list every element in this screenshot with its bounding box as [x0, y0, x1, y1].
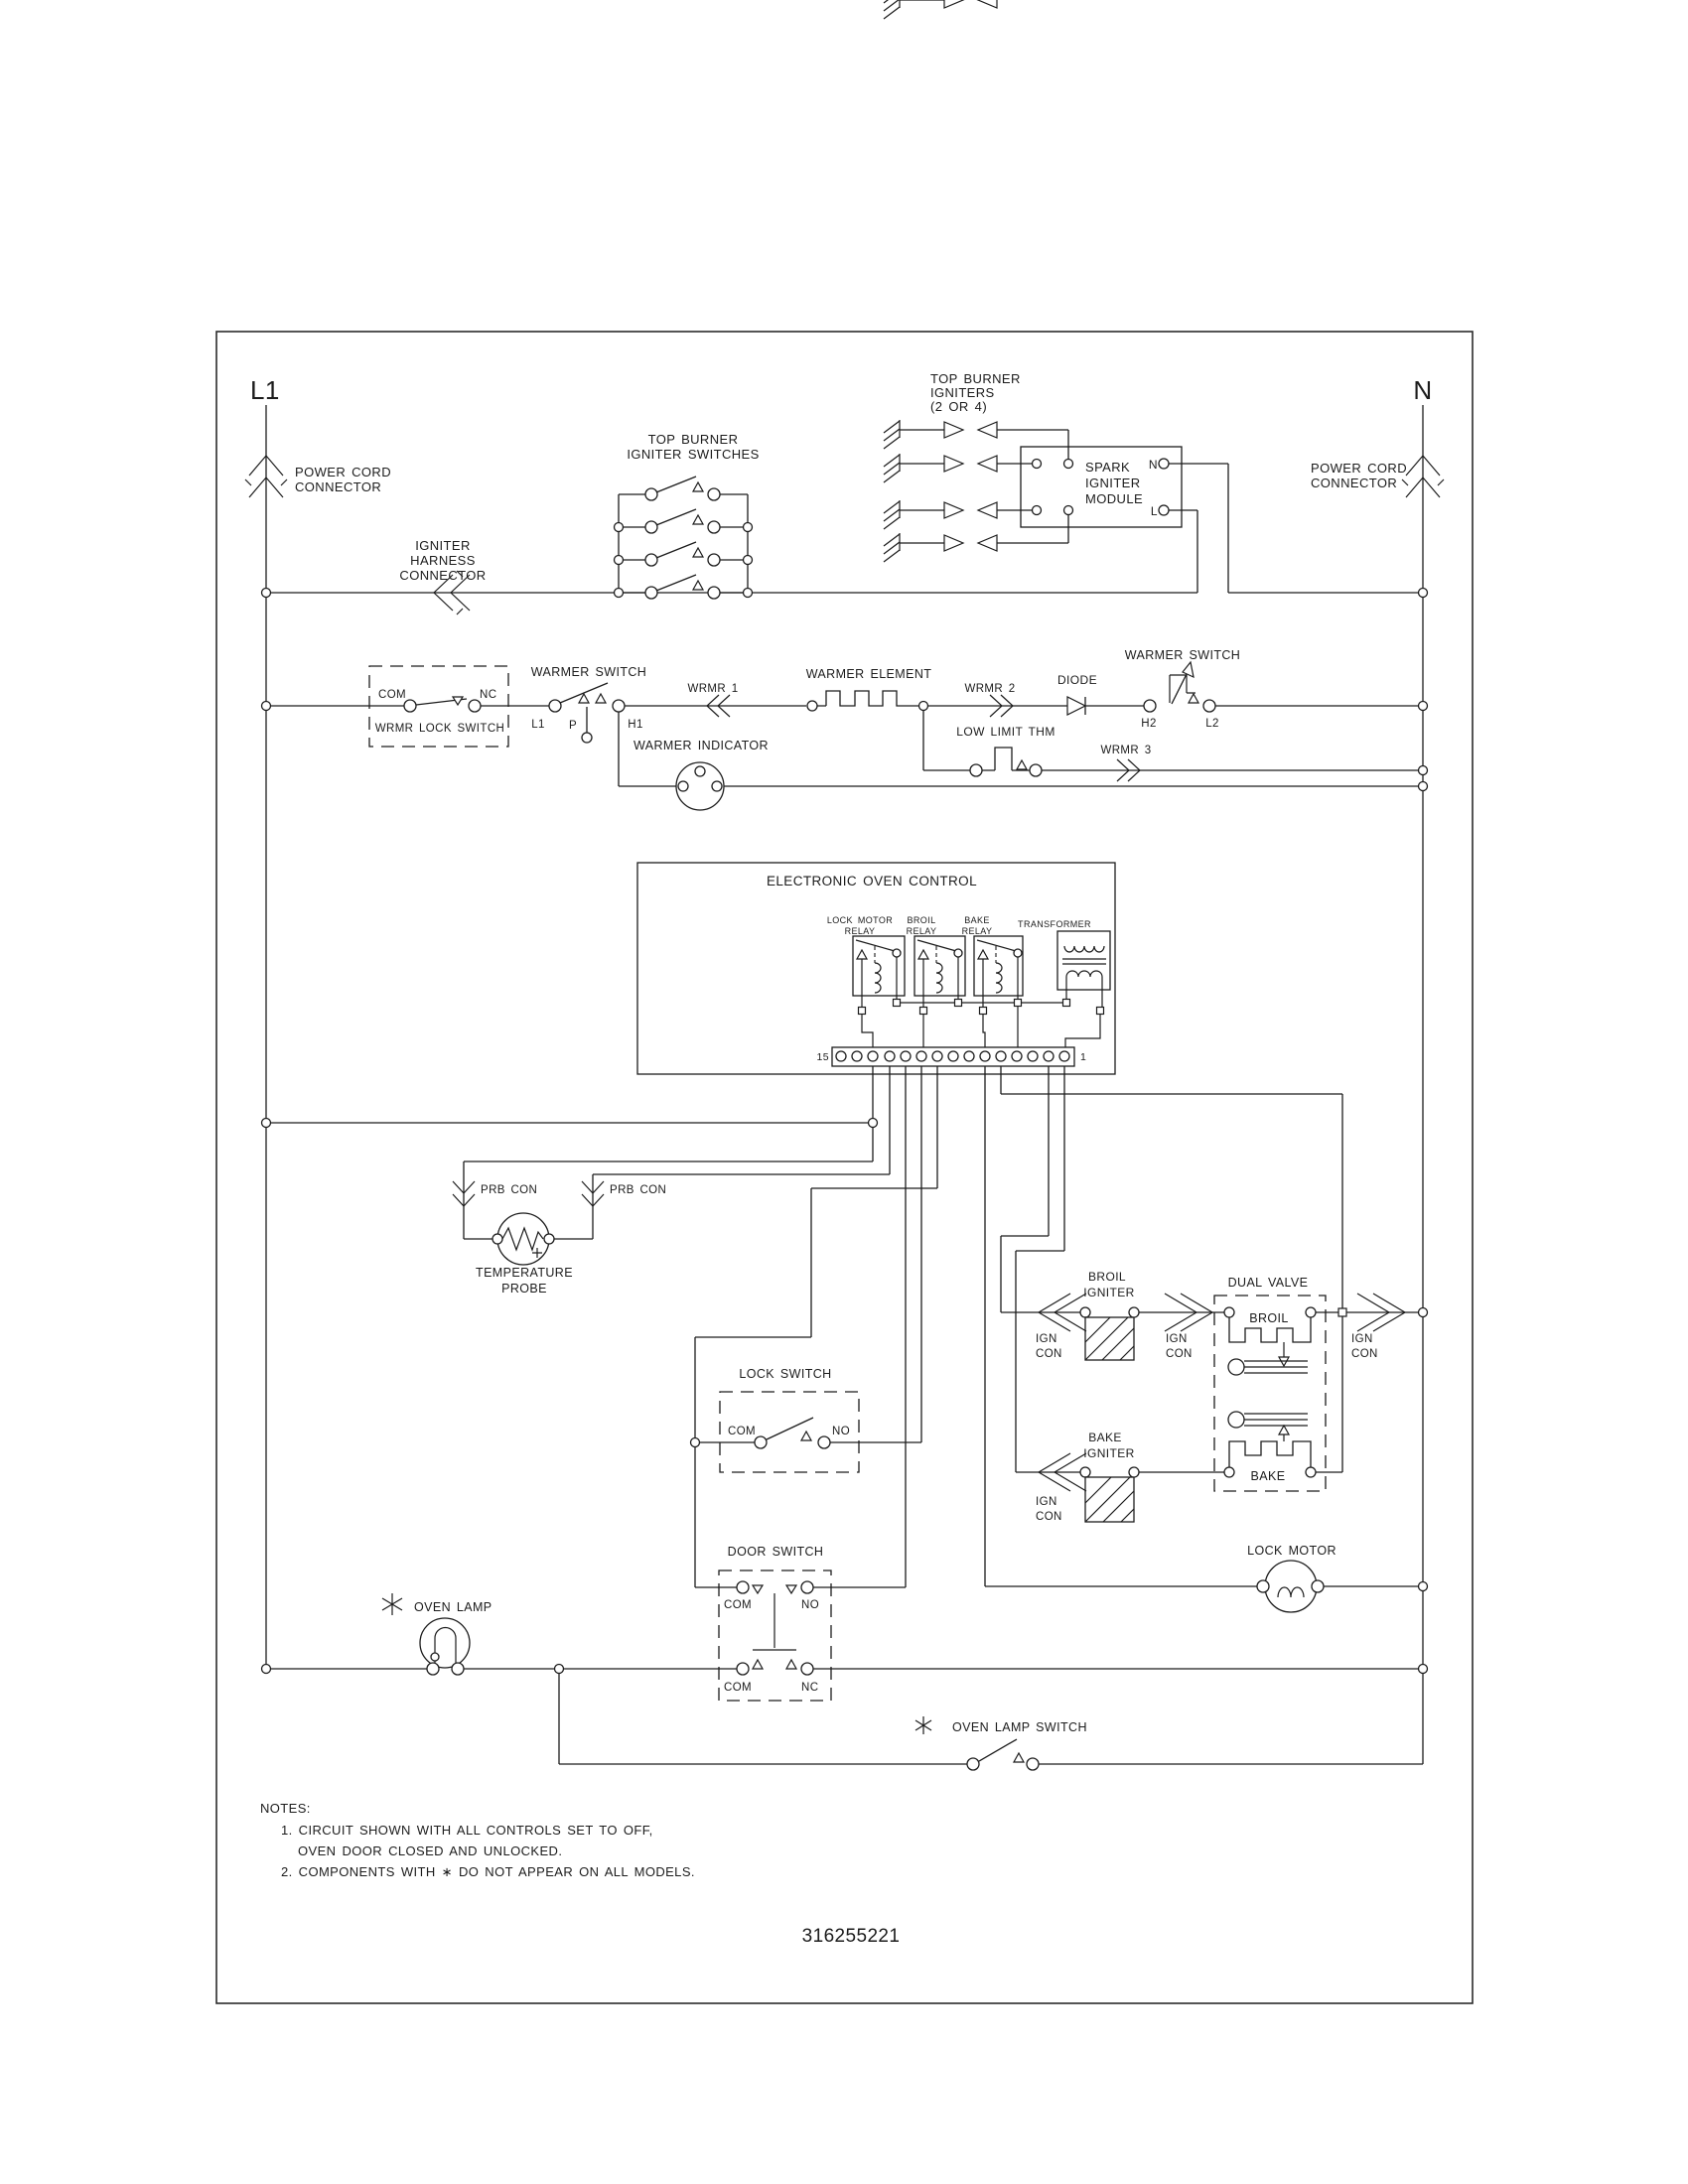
strip-15: 15	[817, 1051, 829, 1063]
lock-motor-relay-1: LOCK MOTOR	[827, 915, 893, 925]
bake-igniter-1: BAKE	[1088, 1431, 1122, 1444]
part-number: 316255221	[802, 1926, 901, 1947]
wrmr-3-label: WRMR 3	[1100, 745, 1151, 756]
transformer-label: TRANSFORMER	[1018, 919, 1091, 929]
low-limit-thermostat	[923, 711, 1423, 781]
lock-motor-label: LOCK MOTOR	[1247, 1544, 1336, 1558]
top-burner-igniter-switches	[615, 0, 998, 599]
door-switch-no: NO	[801, 1599, 819, 1611]
warmer-indicator-label: WARMER INDICATOR	[633, 739, 769, 752]
warmer-element-symbol	[807, 691, 928, 711]
door-switch-nc: NC	[801, 1682, 818, 1694]
temperature-probe-1: TEMPERATURE	[476, 1266, 573, 1280]
module-terminal-n: N	[1149, 458, 1158, 472]
transformer-symbol	[1057, 931, 1110, 1008]
wiring-diagram-schematic: L1NPOWER CORDCONNECTORIGNITERHARNESSCONN…	[0, 0, 1688, 2184]
warmer-switch-p: P	[569, 720, 577, 732]
eoc-terminal-strip	[832, 1047, 1074, 1066]
ign-con-4a: IGN	[1036, 1496, 1057, 1508]
top-burner-igniters-3: (2 OR 4)	[930, 399, 987, 414]
door-switch-com-top: COM	[724, 1599, 752, 1611]
lock-switch-label: LOCK SWITCH	[739, 1367, 831, 1381]
igniter-harness-connector-1: IGNITER	[415, 538, 471, 553]
ign-con-1b: CON	[1036, 1348, 1062, 1360]
l1-rail-label: L1	[250, 375, 280, 405]
wrmr-2-label: WRMR 2	[964, 683, 1015, 695]
warmer-switch-h1: H1	[628, 719, 643, 731]
diode-symbol	[1067, 697, 1085, 715]
ign-con-2a: IGN	[1166, 1333, 1188, 1345]
wrmr-lock-switch-com: COM	[378, 689, 406, 701]
broil-igniter-1: BROIL	[1088, 1270, 1126, 1284]
asterisk-icon	[382, 1593, 402, 1615]
ign-con-2b: CON	[1166, 1348, 1193, 1360]
warmer-switch-left-label: WARMER SWITCH	[531, 665, 646, 679]
eoc-title: ELECTRONIC OVEN CONTROL	[767, 874, 977, 888]
bake-relay-2: RELAY	[962, 926, 993, 936]
lock-motor-relay-2: RELAY	[845, 926, 876, 936]
bake-igniter-symbol	[1085, 1477, 1134, 1522]
broil-relay-2: RELAY	[907, 926, 937, 936]
broil-relay-symbol	[914, 936, 965, 1007]
door-switch-label: DOOR SWITCH	[728, 1545, 824, 1559]
power-cord-connector-right-1: POWER CORD	[1311, 461, 1407, 476]
n-rail-label: N	[1413, 375, 1432, 405]
diode-label: DIODE	[1057, 673, 1097, 687]
warmer-switch-l1: L1	[531, 719, 545, 731]
warmer-circuit	[266, 662, 1423, 810]
oven-lamp-switch-label: OVEN LAMP SWITCH	[952, 1720, 1087, 1734]
wrmr-lock-switch-nc: NC	[480, 689, 496, 701]
lock-switch-com: COM	[728, 1426, 756, 1437]
top-burner-igniter-switches-2: IGNITER SWITCHES	[627, 447, 759, 462]
warmer-switch-h2: H2	[1141, 718, 1157, 730]
spark-igniter-module-1: SPARK	[1085, 460, 1130, 475]
power-cord-connector-left-2: CONNECTOR	[295, 479, 381, 494]
note-1b: OVEN DOOR CLOSED AND UNLOCKED.	[298, 1843, 562, 1858]
warmer-switch-right-label: WARMER SWITCH	[1125, 648, 1240, 662]
oven-lamp	[266, 1593, 737, 1675]
wrmr-lock-switch-label: WRMR LOCK SWITCH	[375, 723, 505, 735]
power-cord-connector-right-2: CONNECTOR	[1311, 476, 1397, 490]
broil-igniter-2: IGNITER	[1083, 1286, 1134, 1299]
warmer-switch-right	[1144, 662, 1423, 712]
warmer-element-label: WARMER ELEMENT	[806, 667, 932, 681]
temperature-probe-2: PROBE	[501, 1282, 547, 1296]
oven-lamp-label: OVEN LAMP	[414, 1600, 492, 1614]
asterisk-icon	[915, 1716, 931, 1734]
dual-valve-broil: BROIL	[1249, 1311, 1289, 1325]
warmer-switch-left	[549, 683, 625, 743]
igniter-harness-connector-2: HARNESS	[410, 553, 476, 568]
broil-igniter-symbol	[1085, 1317, 1134, 1360]
bake-relay-symbol	[974, 936, 1023, 1007]
power-cord-connector-left-1: POWER CORD	[295, 465, 391, 479]
broil-bake-section	[1039, 1294, 1423, 1522]
lock-motor-symbol	[1257, 1561, 1423, 1612]
label-layer: L1NPOWER CORDCONNECTORIGNITERHARNESSCONN…	[250, 371, 1433, 1947]
top-burner-igniter-switches-1: TOP BURNER	[648, 432, 739, 447]
igniter-harness-connector-3: CONNECTOR	[399, 568, 486, 583]
ign-con-1a: IGN	[1036, 1333, 1057, 1345]
warmer-switch-l2: L2	[1205, 718, 1219, 730]
power-rails	[245, 405, 1444, 1764]
prb-con-left: PRB CON	[481, 1184, 537, 1196]
notes-title: NOTES:	[260, 1801, 311, 1816]
electronic-oven-control	[637, 863, 1115, 1074]
junction-dots	[262, 589, 1428, 1674]
note-1a: 1. CIRCUIT SHOWN WITH ALL CONTROLS SET T…	[281, 1823, 653, 1838]
top-burner-igniters-1: TOP BURNER	[930, 371, 1021, 386]
top-burner-igniters-2: IGNITERS	[930, 385, 995, 400]
dual-valve-bake: BAKE	[1251, 1469, 1286, 1483]
note-2: 2. COMPONENTS WITH ∗ DO NOT APPEAR ON AL…	[281, 1864, 695, 1879]
ign-con-4b: CON	[1036, 1511, 1062, 1523]
bake-relay-1: BAKE	[964, 915, 990, 925]
spark-igniter-module-3: MODULE	[1085, 491, 1143, 506]
prb-con-right: PRB CON	[610, 1184, 666, 1196]
strip-1: 1	[1080, 1051, 1086, 1063]
spark-igniter-module-2: IGNITER	[1085, 476, 1141, 490]
dual-valve-label: DUAL VALVE	[1228, 1276, 1309, 1290]
ign-con-3b: CON	[1351, 1348, 1378, 1360]
lock-switch-no: NO	[832, 1426, 850, 1437]
eoc-output-wiring	[266, 1066, 1342, 1587]
module-terminal-l: L	[1151, 504, 1158, 518]
low-limit-thm-label: LOW LIMIT THM	[956, 725, 1055, 739]
lock-motor-relay-symbol	[853, 936, 905, 1007]
bake-igniter-2: IGNITER	[1083, 1446, 1134, 1460]
top-burner-igniters	[884, 420, 1068, 562]
wrmr-1-label: WRMR 1	[687, 683, 738, 695]
ign-con-3a: IGN	[1351, 1333, 1373, 1345]
broil-relay-1: BROIL	[907, 915, 935, 925]
door-switch-com-bottom: COM	[724, 1682, 752, 1694]
